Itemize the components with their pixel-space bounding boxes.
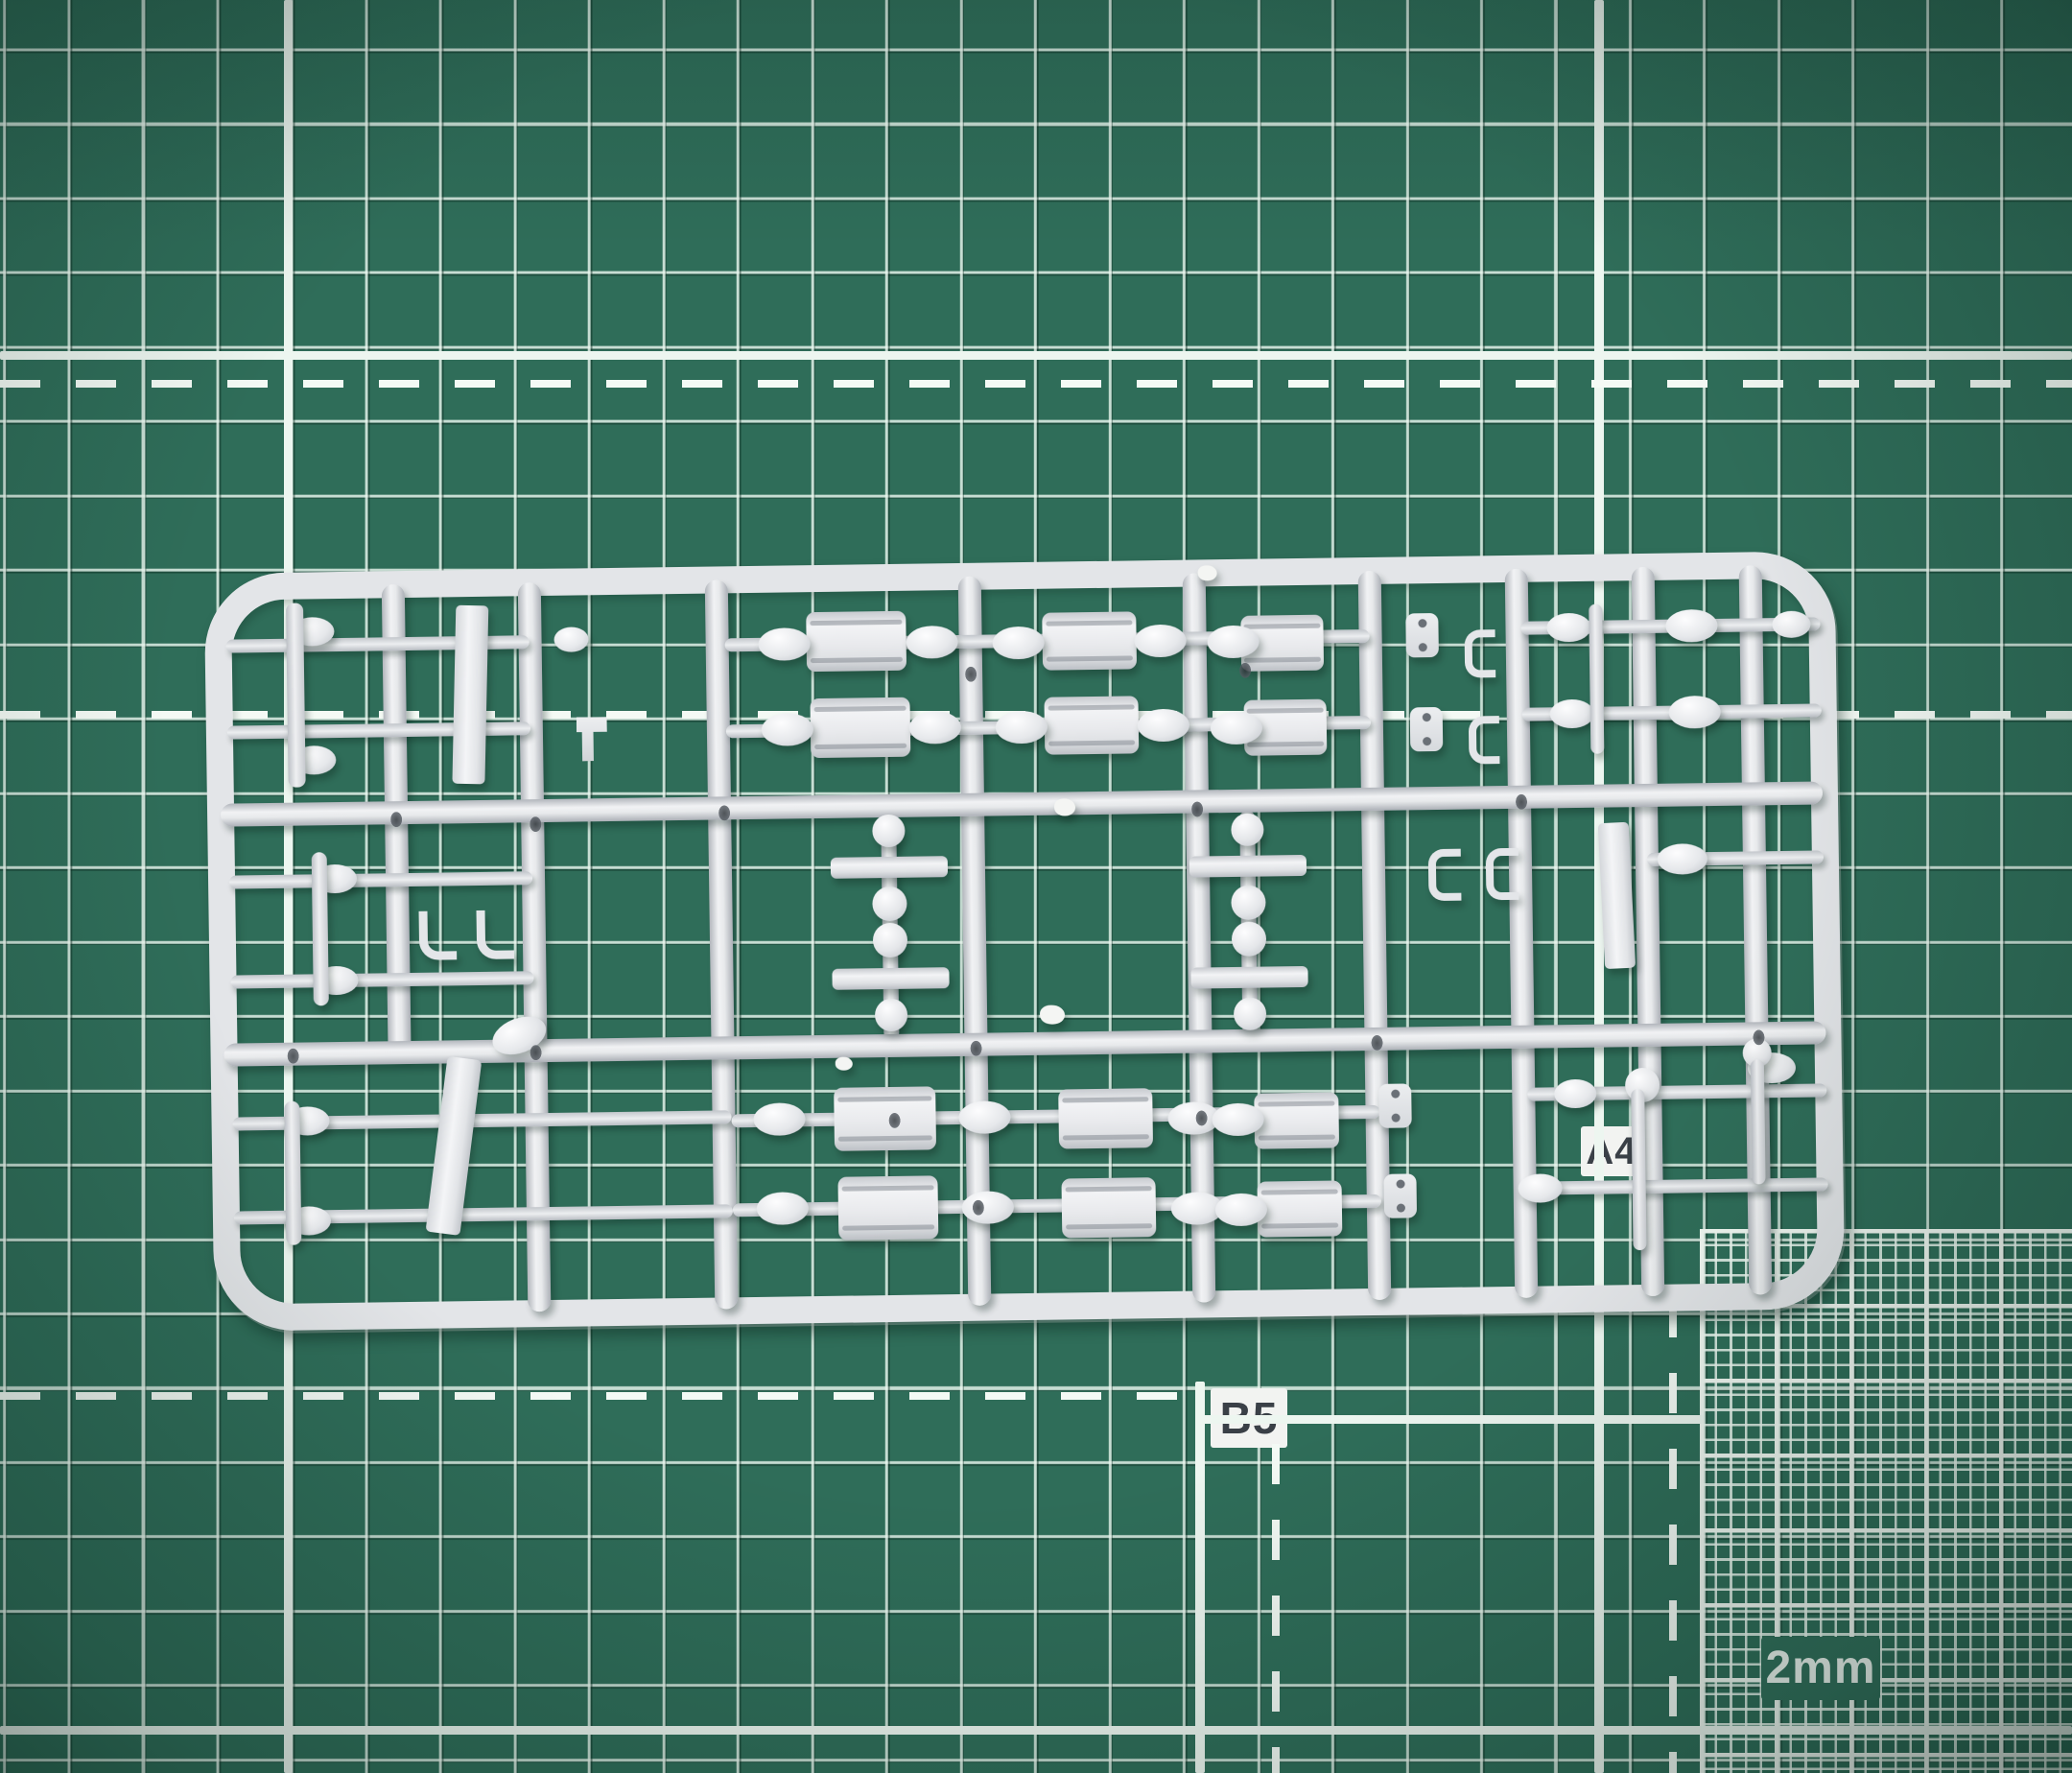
sprue-part-box [837,1175,938,1240]
sprue-part-speck [836,1057,853,1071]
sprue-injection-mark [1239,663,1251,678]
sprue-part-bar [831,856,948,879]
sprue-part-bar [1190,966,1307,989]
sprue-injection-mark [1191,801,1203,816]
sprue-part-rod [1751,1059,1766,1184]
sprue-injection-mark [965,667,977,682]
sprue-part-bar [832,967,949,990]
sprue-part-tag [1410,707,1444,751]
sprue-part-tag [1383,1173,1417,1217]
sprue-part-box [1042,611,1137,670]
sprue-part-rod [284,1101,301,1245]
sprue-part-box [1254,1092,1339,1148]
sprue-part-speck [1054,798,1075,816]
sprue-injection-mark [718,805,730,820]
sprue-part-rod [1631,1089,1646,1250]
sprue-part-rod [1589,604,1604,754]
sprue-injection-mark [1371,1035,1382,1051]
sprue-part-hook [419,910,458,960]
sprue-part-tag [1405,613,1439,657]
sprue-part-clip [1486,848,1519,900]
sprue-part-rod [312,852,329,1005]
sprue-part-box [1058,1088,1153,1148]
sprue-injection-mark [390,812,402,827]
sprue-injection-mark [973,1200,984,1216]
sprue-part-box [1044,696,1139,754]
sprue-part-clip [1428,849,1462,901]
sprue-injection-mark [970,1041,981,1056]
sprue-part-clip [1469,716,1500,764]
sprue-part-plate [452,605,488,785]
sprue-part-box [1061,1177,1156,1238]
sprue-part-clip [1465,629,1496,677]
sprue-injection-mark [1195,1110,1207,1125]
sprue-part-box [810,697,910,758]
sprue-part-hook [477,910,515,959]
sprue-part-box [806,611,906,672]
sprue-part-rod [286,603,306,787]
sprue-injection-mark [530,1045,541,1060]
sprue-injection-mark [888,1113,900,1128]
sprue-part-tag [1378,1083,1412,1127]
plastic-model-sprue [0,0,2072,1773]
sprue-part-bar [1189,855,1307,878]
sprue-injection-mark [1753,1029,1764,1045]
sprue-injection-mark [287,1049,298,1064]
photo-sprue-on-cutting-mat: B5 A4 2mm [0,0,2072,1773]
sprue-part-speck [1198,565,1217,580]
sprue-part-box [1258,1180,1343,1237]
sprue-part-speck [1040,1005,1065,1024]
sprue-injection-mark [530,816,541,832]
sprue-part-box [834,1086,936,1150]
sprue-injection-mark [1516,794,1527,810]
